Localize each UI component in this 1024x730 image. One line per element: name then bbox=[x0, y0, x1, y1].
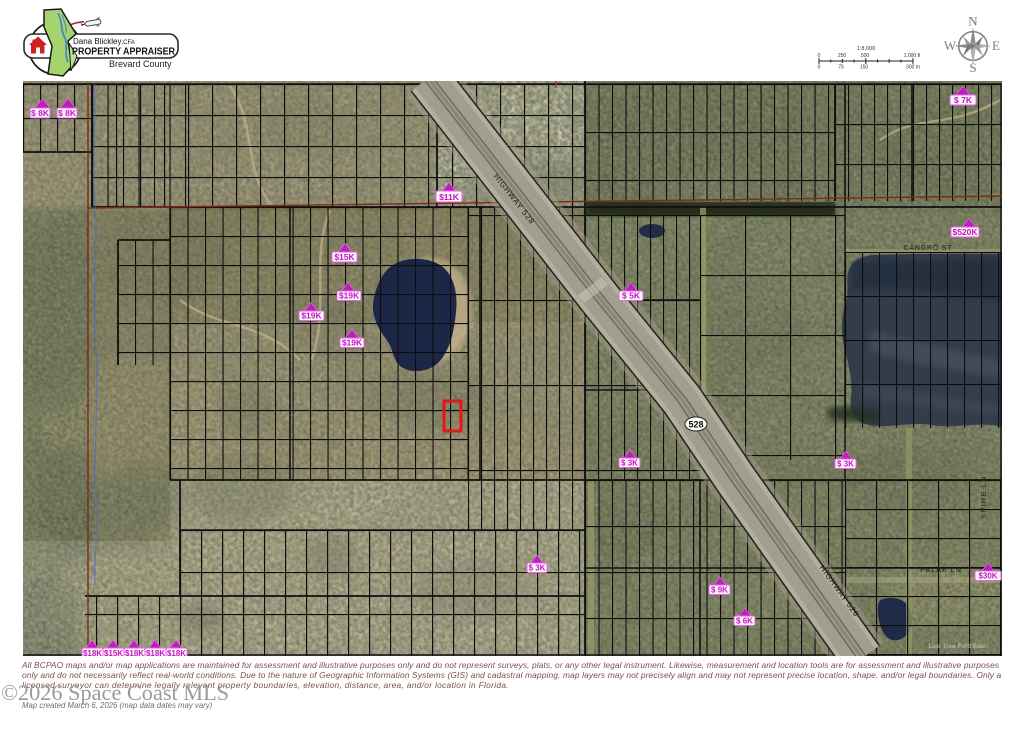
svg-text:$18K: $18K bbox=[125, 649, 144, 658]
svg-text:300 m: 300 m bbox=[906, 65, 920, 71]
svg-text:528: 528 bbox=[688, 420, 703, 430]
svg-text:E: E bbox=[992, 38, 1000, 53]
svg-text:$520K: $520K bbox=[952, 227, 978, 237]
svg-text:$19K: $19K bbox=[301, 311, 322, 321]
svg-text:$ 8K: $ 8K bbox=[58, 108, 77, 118]
svg-text:0: 0 bbox=[818, 65, 821, 71]
svg-text:Brevard County: Brevard County bbox=[109, 59, 172, 69]
svg-text:only and do not necessarily re: only and do not necessarily reflect real… bbox=[22, 670, 1002, 680]
svg-text:$11K: $11K bbox=[439, 192, 460, 202]
svg-text:$ 7K: $ 7K bbox=[954, 95, 973, 105]
svg-text:$ 3K: $ 3K bbox=[837, 460, 854, 469]
svg-text:$18K: $18K bbox=[83, 649, 102, 658]
svg-text:$ 8K: $ 8K bbox=[31, 108, 50, 118]
svg-text:1,000 ft: 1,000 ft bbox=[904, 53, 921, 59]
svg-text:150: 150 bbox=[860, 65, 869, 71]
svg-text:1:8,000: 1:8,000 bbox=[857, 46, 875, 52]
svg-text:$ 3K: $ 3K bbox=[529, 564, 546, 573]
svg-text:PROPERTY APPRAISER: PROPERTY APPRAISER bbox=[72, 47, 176, 58]
svg-text:$19K: $19K bbox=[342, 338, 363, 348]
svg-text:$ 9K: $ 9K bbox=[711, 586, 728, 595]
svg-text:Last Tree Ford Baie.: Last Tree Ford Baie. bbox=[929, 643, 988, 650]
svg-text:$18K: $18K bbox=[167, 649, 186, 658]
svg-text:PALAE LN: PALAE LN bbox=[920, 565, 962, 574]
svg-text:75: 75 bbox=[838, 65, 844, 71]
svg-text:SPIRE LN: SPIRE LN bbox=[979, 475, 988, 519]
svg-text:$ 6K: $ 6K bbox=[736, 617, 753, 626]
svg-text:250: 250 bbox=[838, 53, 847, 59]
svg-text:Map created March 6, 2026 (map: Map created March 6, 2026 (map data date… bbox=[22, 701, 213, 710]
svg-text:$15K: $15K bbox=[334, 252, 355, 262]
svg-text:$30K: $30K bbox=[978, 572, 997, 581]
svg-text:All BCPAO maps and/or map appl: All BCPAO maps and/or map applications a… bbox=[21, 660, 1000, 670]
svg-text:N: N bbox=[968, 14, 978, 29]
svg-text:$18K: $18K bbox=[146, 649, 165, 658]
svg-text:$15K: $15K bbox=[104, 649, 123, 658]
svg-text:W: W bbox=[944, 38, 957, 53]
svg-text:$ 3K: $ 3K bbox=[621, 459, 638, 468]
svg-text:500: 500 bbox=[861, 53, 870, 59]
svg-text:$ 5K: $ 5K bbox=[622, 291, 641, 301]
svg-text:S: S bbox=[969, 60, 976, 75]
svg-text:CANGRO ST: CANGRO ST bbox=[904, 245, 953, 252]
svg-text:$19K: $19K bbox=[339, 291, 360, 301]
